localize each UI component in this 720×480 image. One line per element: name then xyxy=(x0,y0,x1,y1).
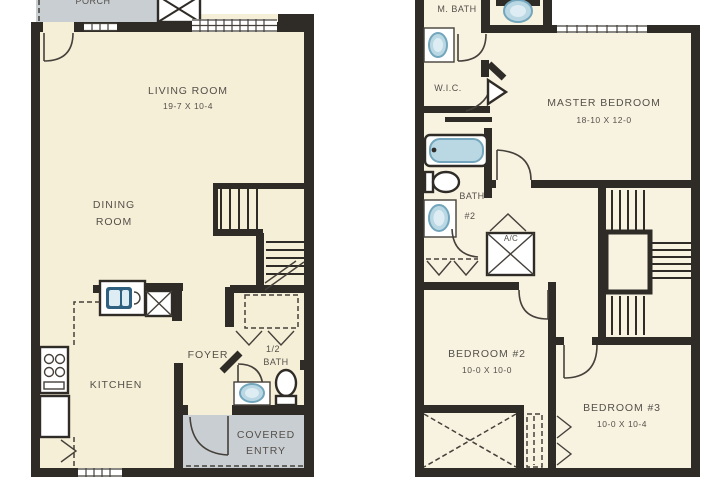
living-room-dims: 19-7 X 10-4 xyxy=(163,100,213,113)
bath2-label-line1: BATH xyxy=(459,190,484,203)
dining-room-label-line1: DINING xyxy=(93,199,135,212)
plan1-kitchen-sink xyxy=(100,281,145,315)
kitchen-label: KITCHEN xyxy=(90,379,142,392)
bath2-label-line2: #2 xyxy=(464,210,475,223)
plan1-kitchen-xbox xyxy=(146,291,172,316)
porch-label: PORCH xyxy=(75,0,110,8)
ac-label: A/C xyxy=(504,232,518,245)
master-bedroom-label: MASTER BEDROOM xyxy=(547,97,661,110)
bedroom3-label: BEDROOM #3 xyxy=(583,402,661,415)
plan2-mbath-sink xyxy=(424,28,454,62)
master-bath-label: M. BATH xyxy=(437,3,476,16)
half-bath-label-line2: BATH xyxy=(263,356,288,369)
plan1-stove xyxy=(40,347,68,393)
plan1-halfbath-sink xyxy=(234,382,270,405)
wic-label: W.I.C. xyxy=(434,82,462,95)
plan1-refrigerator xyxy=(40,396,69,437)
window-top-right xyxy=(192,19,277,32)
window-top-left xyxy=(84,23,117,31)
foyer-label: FOYER xyxy=(188,349,229,362)
living-room-label: LIVING ROOM xyxy=(148,85,228,98)
bedroom2-dims: 10-0 X 10-0 xyxy=(462,364,512,377)
floorplan-page: PORCH LIVING ROOM 19-7 X 10-4 DINING ROO… xyxy=(0,0,720,480)
plan2-bath2-sink xyxy=(424,200,456,237)
covered-entry-label-line1: COVERED xyxy=(237,429,295,442)
plan2-bath2-toilet xyxy=(425,172,459,192)
bedroom2-label: BEDROOM #2 xyxy=(448,348,526,361)
bedroom3-dims: 10-0 X 10-4 xyxy=(597,418,647,431)
covered-entry-label-line2: ENTRY xyxy=(246,445,286,458)
plan2-bathtub xyxy=(425,135,487,166)
dining-room-label-line2: ROOM xyxy=(96,216,132,229)
window-bottom xyxy=(78,468,122,477)
plan1-porch-closet xyxy=(158,0,200,22)
half-bath-label-line1: 1/2 xyxy=(266,343,280,356)
master-bedroom-dims: 18-10 X 12-0 xyxy=(576,114,631,127)
plan2-window-top xyxy=(557,25,647,33)
